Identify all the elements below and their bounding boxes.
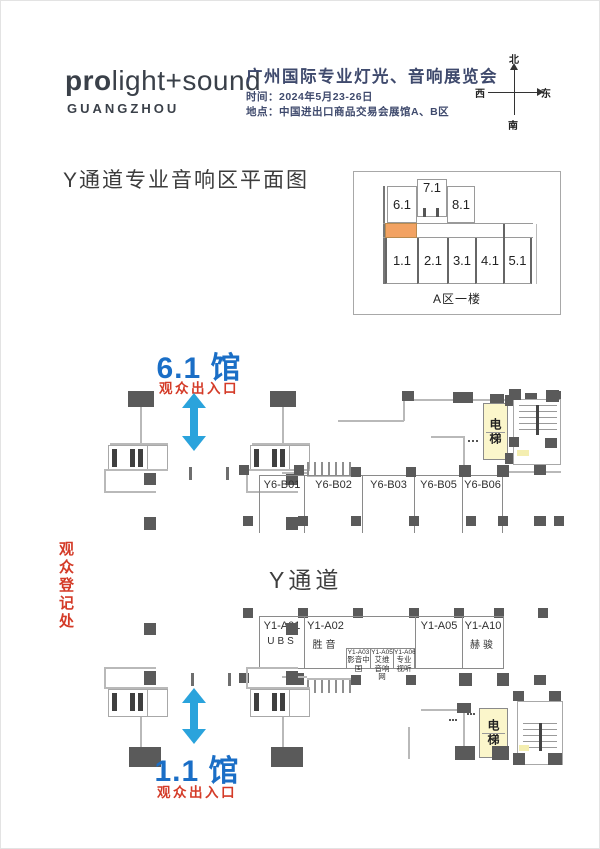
expo-title: 广州国际专业灯光、音响展览会 [246, 63, 498, 87]
stairs-icon [519, 405, 557, 435]
overview-highlight-zone [385, 223, 417, 238]
map-line [503, 224, 505, 238]
booth-id: Y1-A05 [416, 617, 462, 632]
column [509, 437, 519, 447]
column [538, 608, 548, 618]
overview-hall-4-1: 4.1 [475, 238, 503, 284]
wall-dots [467, 713, 475, 715]
room-mark [130, 693, 135, 711]
sbox: Y1-A06 专业视听 [393, 648, 415, 668]
upper-floorplan: Y6-B01 Y6-B02 Y6-B03 Y6-B05 Y6-B06 电梯 [91, 389, 569, 535]
room-mark [272, 449, 277, 467]
column [128, 391, 154, 407]
arrow-shaft [190, 701, 198, 731]
arrow-head [182, 729, 206, 744]
booth-id: Y6-B02 [305, 476, 362, 491]
elevator-divider [486, 432, 505, 433]
booth-cell-small: Y1-A06 专业视听 [393, 617, 415, 668]
column [546, 390, 559, 402]
expo-date: 时间：2024年5月23-26日 [246, 89, 373, 104]
column [497, 465, 509, 477]
booth-id: Y1-A10 [463, 617, 503, 632]
column [492, 746, 509, 760]
wall [104, 469, 168, 471]
booth-id: Y6-B06 [463, 476, 502, 491]
column [270, 391, 296, 407]
elevator-divider [482, 733, 505, 734]
wall [338, 420, 404, 422]
room-mark [112, 449, 117, 467]
wall [104, 469, 106, 493]
wall [104, 491, 156, 493]
column [144, 517, 156, 530]
column [239, 465, 249, 475]
wall [140, 717, 142, 749]
overview-caption: A区一楼 [354, 290, 560, 307]
floor-mark [517, 450, 529, 456]
column [498, 516, 508, 526]
column-tick [191, 673, 194, 686]
room-mark [272, 693, 277, 711]
brand-logo: prolight+sound [65, 67, 261, 95]
column-tick [189, 467, 192, 480]
rooms [108, 445, 168, 471]
floorplan-page: prolight+sound GUANGZHOU 广州国际专业灯光、音响展览会 … [0, 0, 600, 849]
column [497, 673, 509, 686]
room-mark [138, 693, 143, 711]
expo-venue: 地点：中国进出口商品交易会展馆A、B区 [246, 104, 449, 119]
column [534, 465, 546, 475]
column [286, 623, 298, 635]
wall [104, 667, 156, 669]
column [406, 467, 416, 477]
map-line [536, 224, 537, 284]
booth-cell: Y6-B03 [362, 476, 414, 533]
compass-west: 西 [475, 85, 485, 100]
wall [246, 667, 248, 689]
sbox: Y1-A03 影音中国 [346, 648, 370, 668]
map-line [423, 208, 426, 217]
room-divider [289, 690, 290, 716]
channel-label: Y通道 [269, 561, 342, 595]
room-mark [138, 449, 143, 467]
overview-map: 6.1 7.1 8.1 1.1 2.1 3.1 4.1 5.1 A区一楼 [353, 171, 561, 315]
map-line [488, 92, 540, 93]
column [406, 675, 416, 685]
brand-logo-rest: light+sound [112, 65, 262, 96]
small-booth-comb [307, 678, 351, 693]
booth-cell-small: Y1-A05 艾维音响网 [370, 617, 393, 668]
overview-hall-1-1: 1.1 [385, 238, 417, 284]
wall [431, 436, 464, 438]
column [545, 438, 557, 448]
overview-bottom-row: 1.1 2.1 3.1 4.1 5.1 [385, 238, 532, 284]
booth-name: 赫骏 [463, 632, 503, 651]
room-mark [112, 693, 117, 711]
column [513, 753, 525, 765]
wall [408, 727, 410, 759]
map-line [436, 208, 439, 217]
booth-id: Y6-B05 [415, 476, 462, 491]
room-mark [254, 693, 259, 711]
compass-icon: 北 西 东 南 [479, 55, 551, 127]
overview-hall-7-1-label: 7.1 [423, 180, 441, 195]
column [402, 391, 414, 401]
column [351, 675, 361, 685]
column [243, 516, 253, 526]
column [490, 394, 504, 403]
booth-cell: Y1-A10 赫骏 [462, 617, 504, 668]
overview-hall-7-1: 7.1 [417, 179, 447, 217]
room-mark [280, 449, 285, 467]
column [549, 691, 561, 701]
column-tick [228, 673, 231, 686]
room-mark [254, 449, 259, 467]
column [144, 671, 156, 685]
wall [282, 717, 284, 749]
wall [140, 407, 142, 443]
wall [282, 407, 284, 443]
wall [403, 399, 405, 421]
booth-name: 艾维音响网 [371, 656, 393, 682]
compass-east: 东 [541, 85, 551, 100]
column [144, 473, 156, 485]
wall-dots [449, 719, 457, 721]
wall [246, 667, 298, 669]
column [144, 623, 156, 635]
overview-hall-3-1: 3.1 [447, 238, 475, 284]
lower-gate-label: 观众出入口 [135, 781, 259, 801]
column [513, 691, 524, 701]
floor-mark [519, 745, 529, 751]
compass-north: 北 [509, 51, 519, 66]
stair-core [539, 723, 542, 751]
lower-entrance-arrow-icon [182, 688, 206, 744]
booth-cell-small: Y1-A03 影音中国 [346, 617, 370, 668]
brand-city: GUANGZHOU [67, 101, 179, 116]
column [409, 516, 419, 526]
column [271, 747, 303, 767]
overview-hall-5-1: 5.1 [503, 238, 532, 284]
page-title: Y通道专业音响区平面图 [63, 164, 309, 194]
column [286, 671, 298, 685]
room-divider [289, 446, 290, 470]
wall-dots [468, 440, 478, 442]
stair-core [536, 405, 539, 435]
column [548, 753, 562, 765]
column [554, 516, 564, 526]
plan-wing [96, 389, 171, 535]
booth-id: Y6-B01 [260, 476, 304, 491]
column [534, 516, 546, 526]
booth-name [416, 632, 462, 636]
booth-id: Y6-B03 [363, 476, 414, 491]
map-line [514, 67, 515, 115]
rooms [250, 689, 310, 717]
room-mark [280, 693, 285, 711]
brand-logo-bold: pro [65, 65, 112, 96]
column [453, 392, 473, 403]
compass-south: 南 [508, 117, 518, 132]
column [351, 516, 361, 526]
column [459, 465, 471, 477]
wall [104, 667, 106, 689]
rooms [108, 689, 168, 717]
column [509, 389, 521, 400]
column [466, 516, 476, 526]
column [534, 675, 546, 685]
column [298, 516, 308, 526]
sbox: Y1-A05 艾维音响网 [370, 648, 393, 668]
booth-cell: Y1-A05 [415, 617, 462, 668]
column [457, 703, 471, 713]
overview-hall-6-1: 6.1 [387, 186, 417, 223]
upper-elevator-cell: 电梯 [483, 403, 508, 460]
column [459, 673, 472, 686]
column-tick [226, 467, 229, 480]
column [455, 746, 475, 760]
room-divider [147, 690, 148, 716]
booth-cell: Y6-B05 [414, 476, 462, 533]
room-divider [147, 446, 148, 470]
column [294, 465, 304, 475]
registration-label: 观众登记处 [55, 541, 76, 641]
column [351, 467, 361, 477]
booth-name: 影音中国 [347, 656, 370, 673]
overview-hall-8-1: 8.1 [447, 186, 475, 223]
room-mark [130, 449, 135, 467]
booth-name: 专业视听 [394, 656, 414, 673]
overview-hall-2-1: 2.1 [417, 238, 447, 284]
